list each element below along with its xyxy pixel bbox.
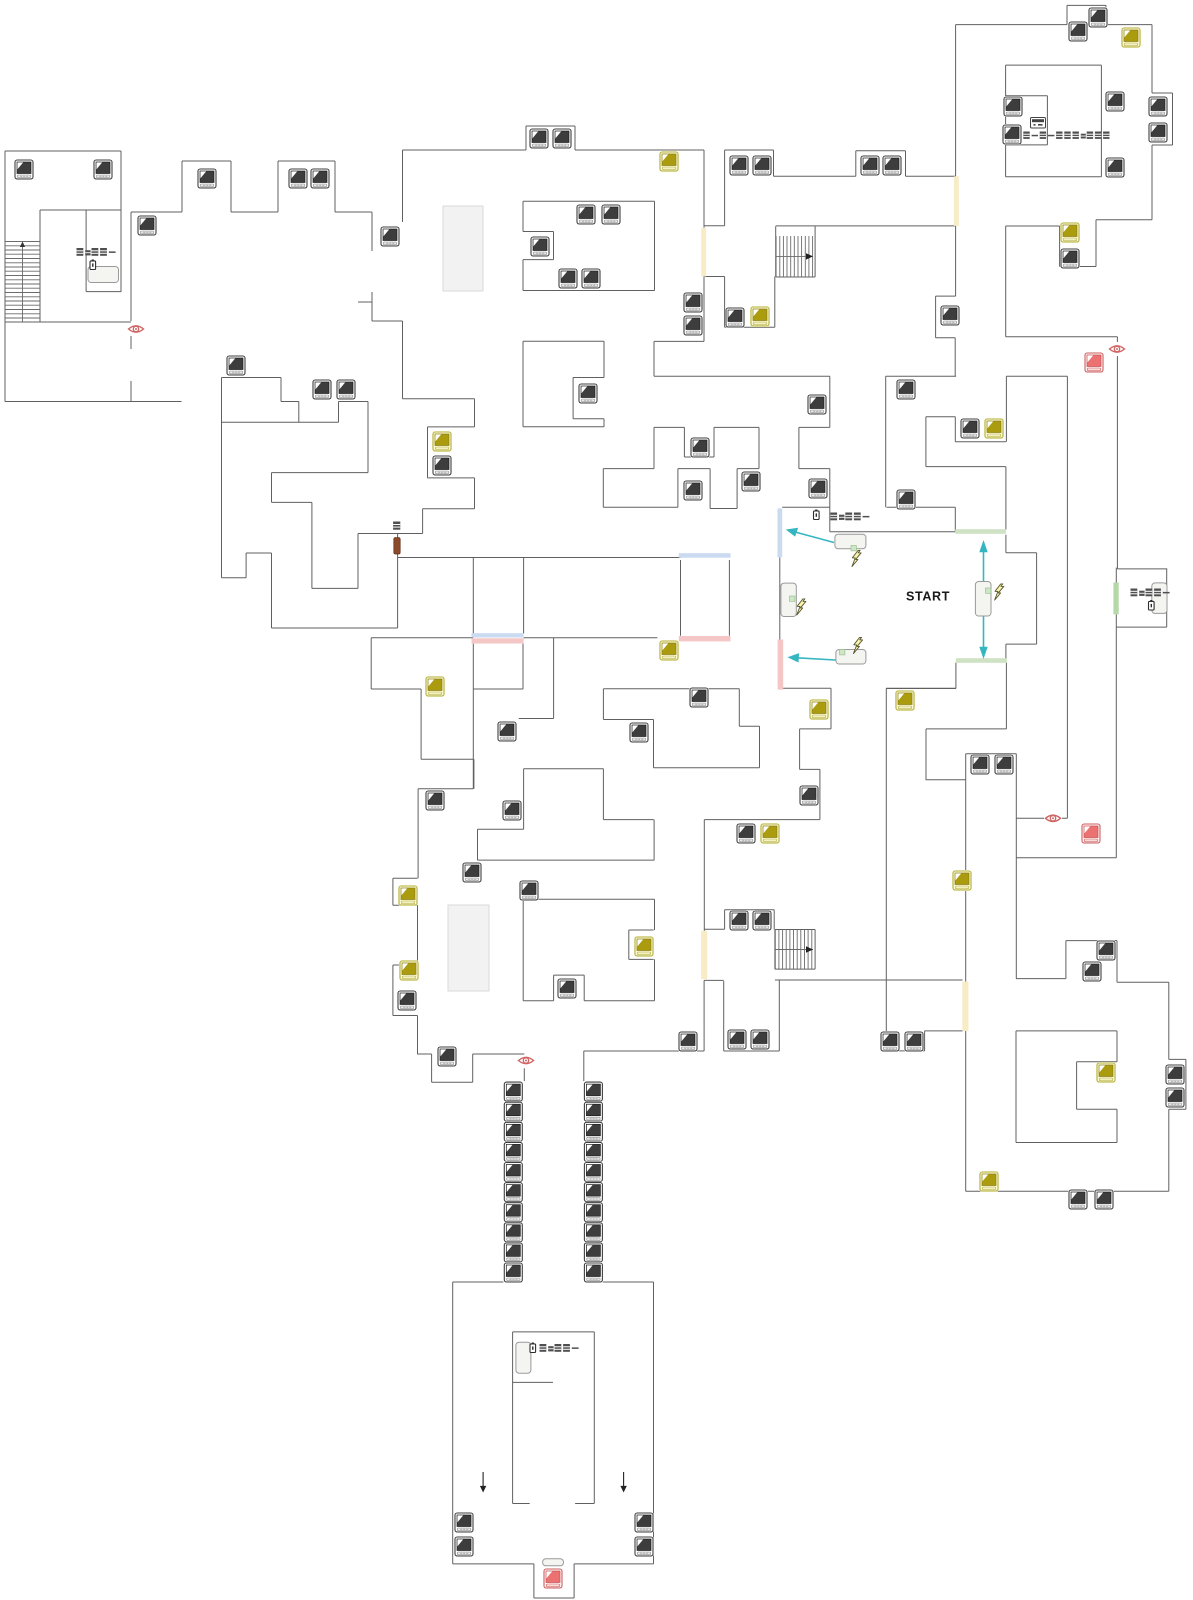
svg-text:START: START — [906, 590, 950, 604]
